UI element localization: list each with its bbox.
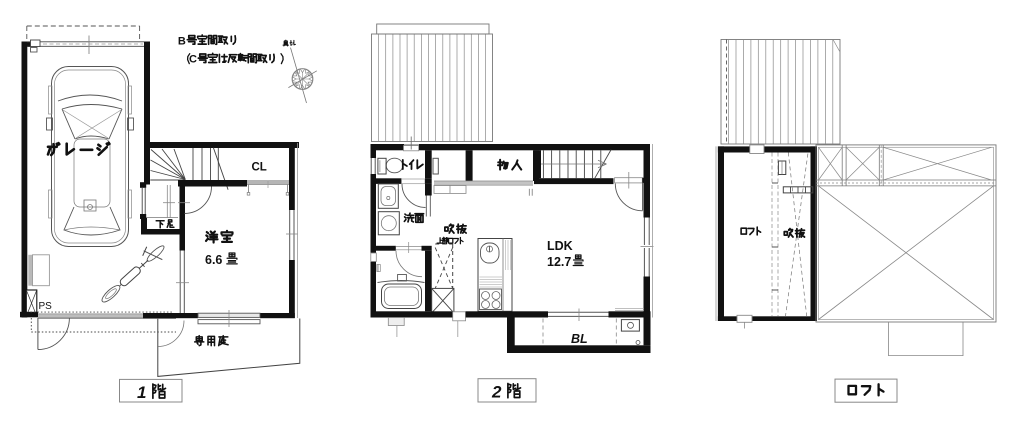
svg-text:6.6: 6.6 bbox=[205, 253, 222, 267]
svg-text:C: C bbox=[189, 54, 197, 66]
svg-text:LDK: LDK bbox=[547, 239, 573, 253]
svg-text:12.7: 12.7 bbox=[547, 255, 571, 269]
svg-text:CL: CL bbox=[252, 162, 267, 174]
svg-text:PS: PS bbox=[39, 301, 53, 312]
svg-text:BL: BL bbox=[571, 332, 588, 346]
svg-text:2: 2 bbox=[491, 383, 502, 402]
svg-text:1: 1 bbox=[137, 383, 146, 402]
svg-text:B: B bbox=[178, 35, 186, 47]
